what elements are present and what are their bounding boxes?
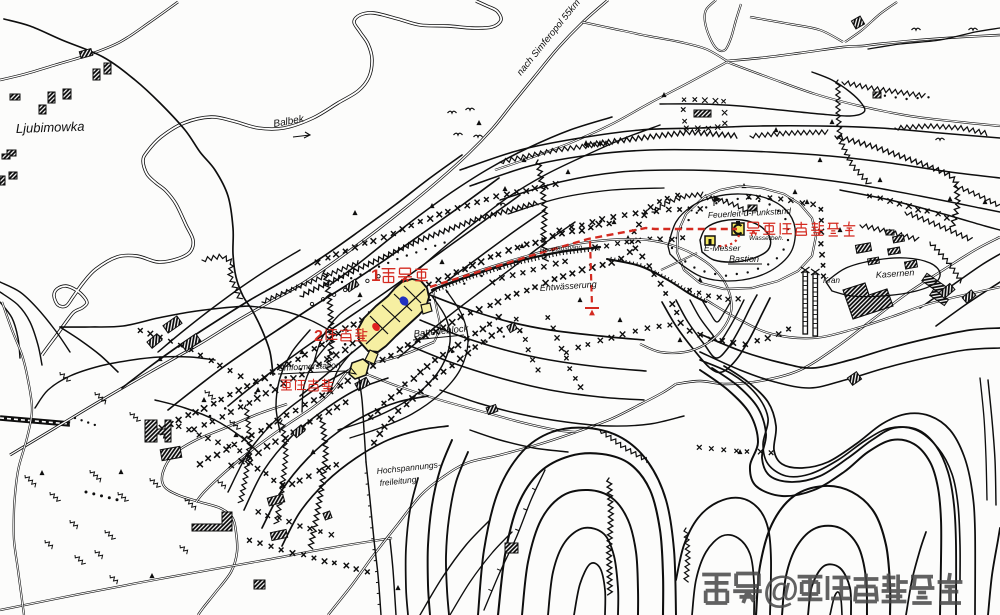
svg-text:Wasserbeh.: Wasserbeh. bbox=[749, 235, 784, 242]
svg-text:E-Messer: E-Messer bbox=[704, 243, 742, 253]
svg-text:Bastion: Bastion bbox=[729, 254, 759, 264]
svg-text:@: @ bbox=[763, 569, 799, 610]
svg-text:1: 1 bbox=[371, 266, 380, 285]
svg-text:Ljubimowka: Ljubimowka bbox=[16, 119, 85, 136]
svg-text:Kran: Kran bbox=[823, 276, 840, 285]
svg-text:2: 2 bbox=[314, 328, 323, 345]
